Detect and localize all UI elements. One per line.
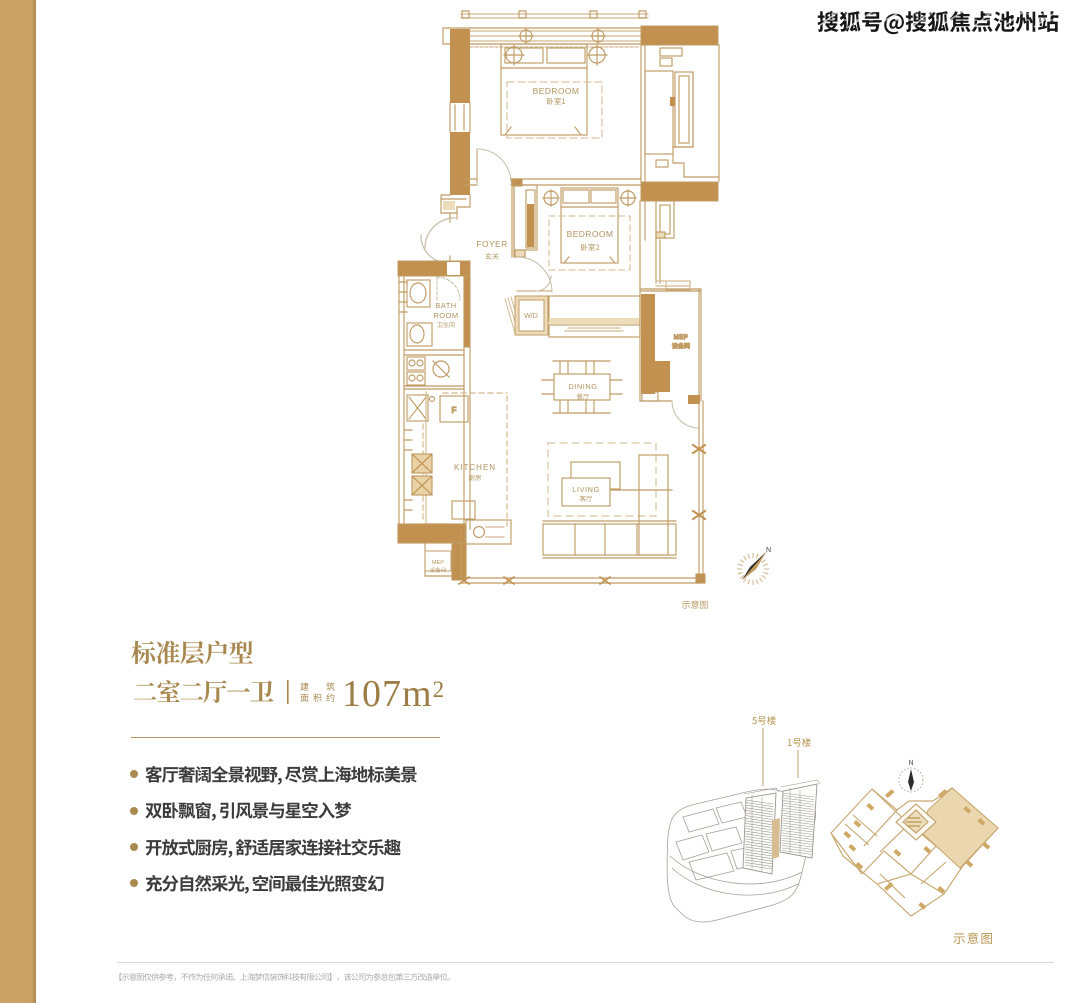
svg-text:F: F xyxy=(452,406,457,415)
svg-text:ROOM: ROOM xyxy=(433,311,458,320)
svg-text:LIVING: LIVING xyxy=(572,485,600,494)
svg-text:BATH: BATH xyxy=(435,301,456,310)
svg-text:N: N xyxy=(766,547,771,554)
svg-text:DINING: DINING xyxy=(568,382,597,391)
svg-text:MEP: MEP xyxy=(674,335,689,341)
svg-text:BEDROOM: BEDROOM xyxy=(567,229,614,239)
svg-text:W/D: W/D xyxy=(524,313,538,320)
svg-text:BEDROOM: BEDROOM xyxy=(533,86,580,96)
svg-text:FOYER: FOYER xyxy=(476,239,507,249)
svg-text:MEP: MEP xyxy=(432,560,444,566)
svg-text:KITCHEN: KITCHEN xyxy=(454,463,496,472)
